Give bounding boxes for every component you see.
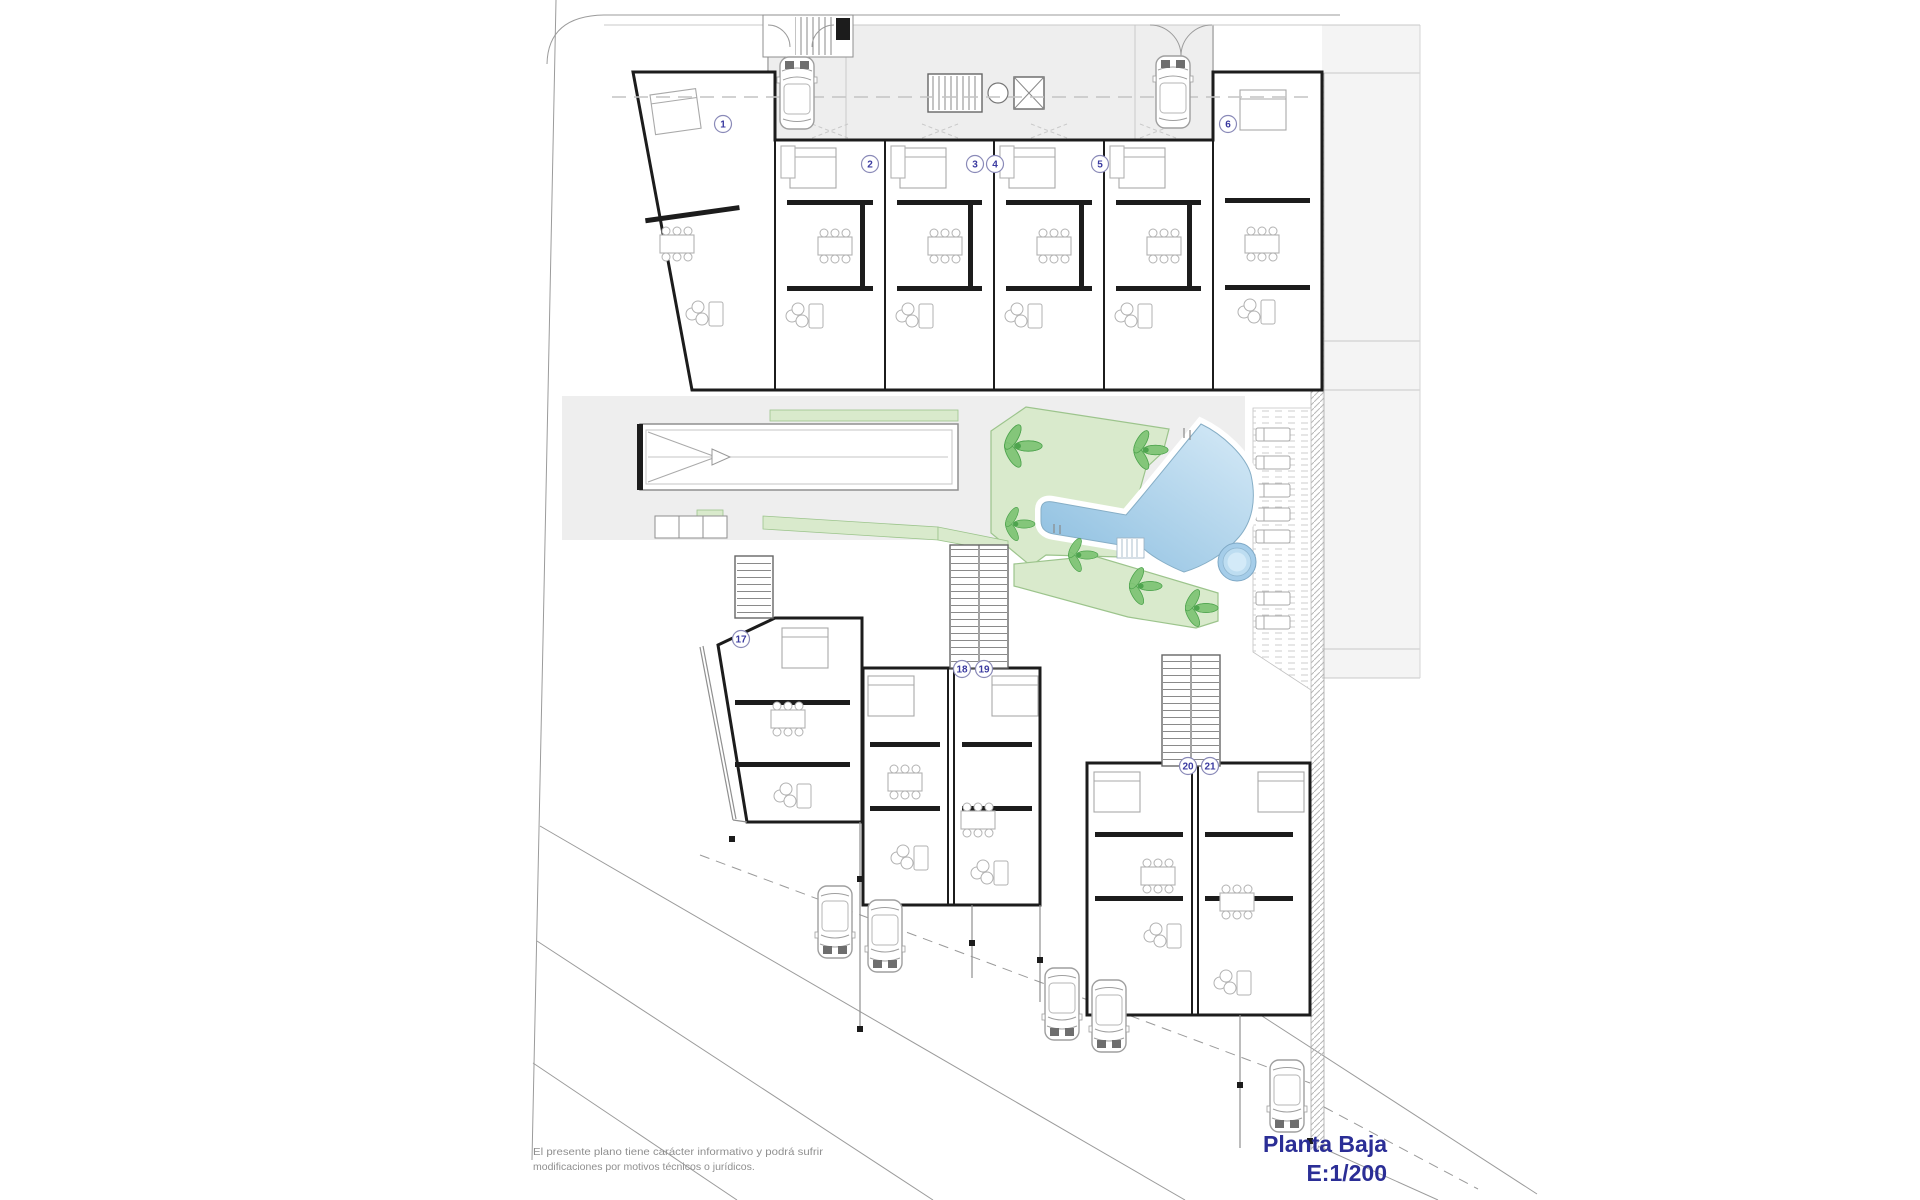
disclaimer-line-1: El presente plano tiene carácter informa… [533,1146,824,1158]
unit-number-6: 6 [1220,116,1237,133]
svg-text:20: 20 [1182,762,1194,773]
unit-number-2: 2 [862,156,879,173]
planter-strip-ramp [770,410,958,421]
unit-number-19: 19 [976,661,993,678]
pool-deck [1253,408,1311,690]
bed [992,676,1038,716]
svg-text:2: 2 [867,160,873,171]
dining-table [1245,227,1279,261]
svg-text:4: 4 [992,160,998,171]
dining-table [888,765,922,799]
garage-ramp [637,424,958,490]
spa-jacuzzi [1218,543,1256,581]
right-sidewalk-band [1322,25,1420,678]
unit-number-5: 5 [1092,156,1109,173]
bed [1094,772,1140,812]
sun-lounger [1256,530,1290,543]
dining-table [961,803,995,837]
storage-rooms [655,516,727,538]
bed [650,89,701,135]
bed [900,148,946,188]
svg-text:3: 3 [972,160,978,171]
sun-lounger [1256,428,1290,441]
unit-number-18: 18 [954,661,971,678]
dining-table [1037,229,1071,263]
unit-number-20: 20 [1180,758,1197,775]
unit-number-4: 4 [987,156,1004,173]
svg-text:18: 18 [956,665,968,676]
car [815,886,855,958]
stair-core-b [1162,655,1220,766]
car [1089,980,1129,1052]
car [1153,56,1193,128]
car [865,900,905,972]
plan-title: Planta Baja [1263,1131,1387,1157]
svg-text:21: 21 [1204,762,1216,773]
car [1267,1060,1307,1132]
elevator [1014,77,1044,109]
plan-scale: E:1/200 [1306,1160,1387,1186]
bottom-building-units18-19 [863,668,1040,905]
bed [790,148,836,188]
svg-text:1: 1 [720,120,726,131]
unit-number-21: 21 [1202,758,1219,775]
dining-table [818,229,852,263]
svg-text:5: 5 [1097,160,1103,171]
dining-table [1220,885,1254,919]
svg-text:19: 19 [978,665,990,676]
dining-table [1141,859,1175,893]
bed [868,676,914,716]
svg-text:17: 17 [735,635,747,646]
sun-lounger [1256,456,1290,469]
dining-table [771,702,805,736]
bed [1240,90,1286,130]
sun-lounger [1256,508,1290,521]
dining-table [660,227,694,261]
stair-core-c [735,556,773,618]
svg-text:6: 6 [1225,120,1231,131]
stair-core-a [950,545,1008,668]
sun-lounger [1256,616,1290,629]
unit-number-3: 3 [967,156,984,173]
floor-plan-page: 1 2 3 4 5 6 17 18 19 20 21 Planta Baja E… [0,0,1920,1200]
bed [1119,148,1165,188]
car [1042,968,1082,1040]
dining-table [928,229,962,263]
spiral-column [988,83,1008,103]
bed [782,628,828,668]
bed [1258,772,1304,812]
car [777,57,817,129]
disclaimer-line-2: modificaciones por motivos técnicos o ju… [533,1161,755,1173]
pool-steps [1117,538,1144,558]
sun-lounger [1256,592,1290,605]
dining-table [1147,229,1181,263]
bed [1009,148,1055,188]
sun-lounger [1256,484,1290,497]
unit-number-1: 1 [715,116,732,133]
bottom-building-units20-21 [1087,763,1310,1015]
unit-number-17: 17 [733,631,750,648]
floor-plan-drawing: 1 2 3 4 5 6 17 18 19 20 21 Planta Baja E… [0,0,1920,1200]
